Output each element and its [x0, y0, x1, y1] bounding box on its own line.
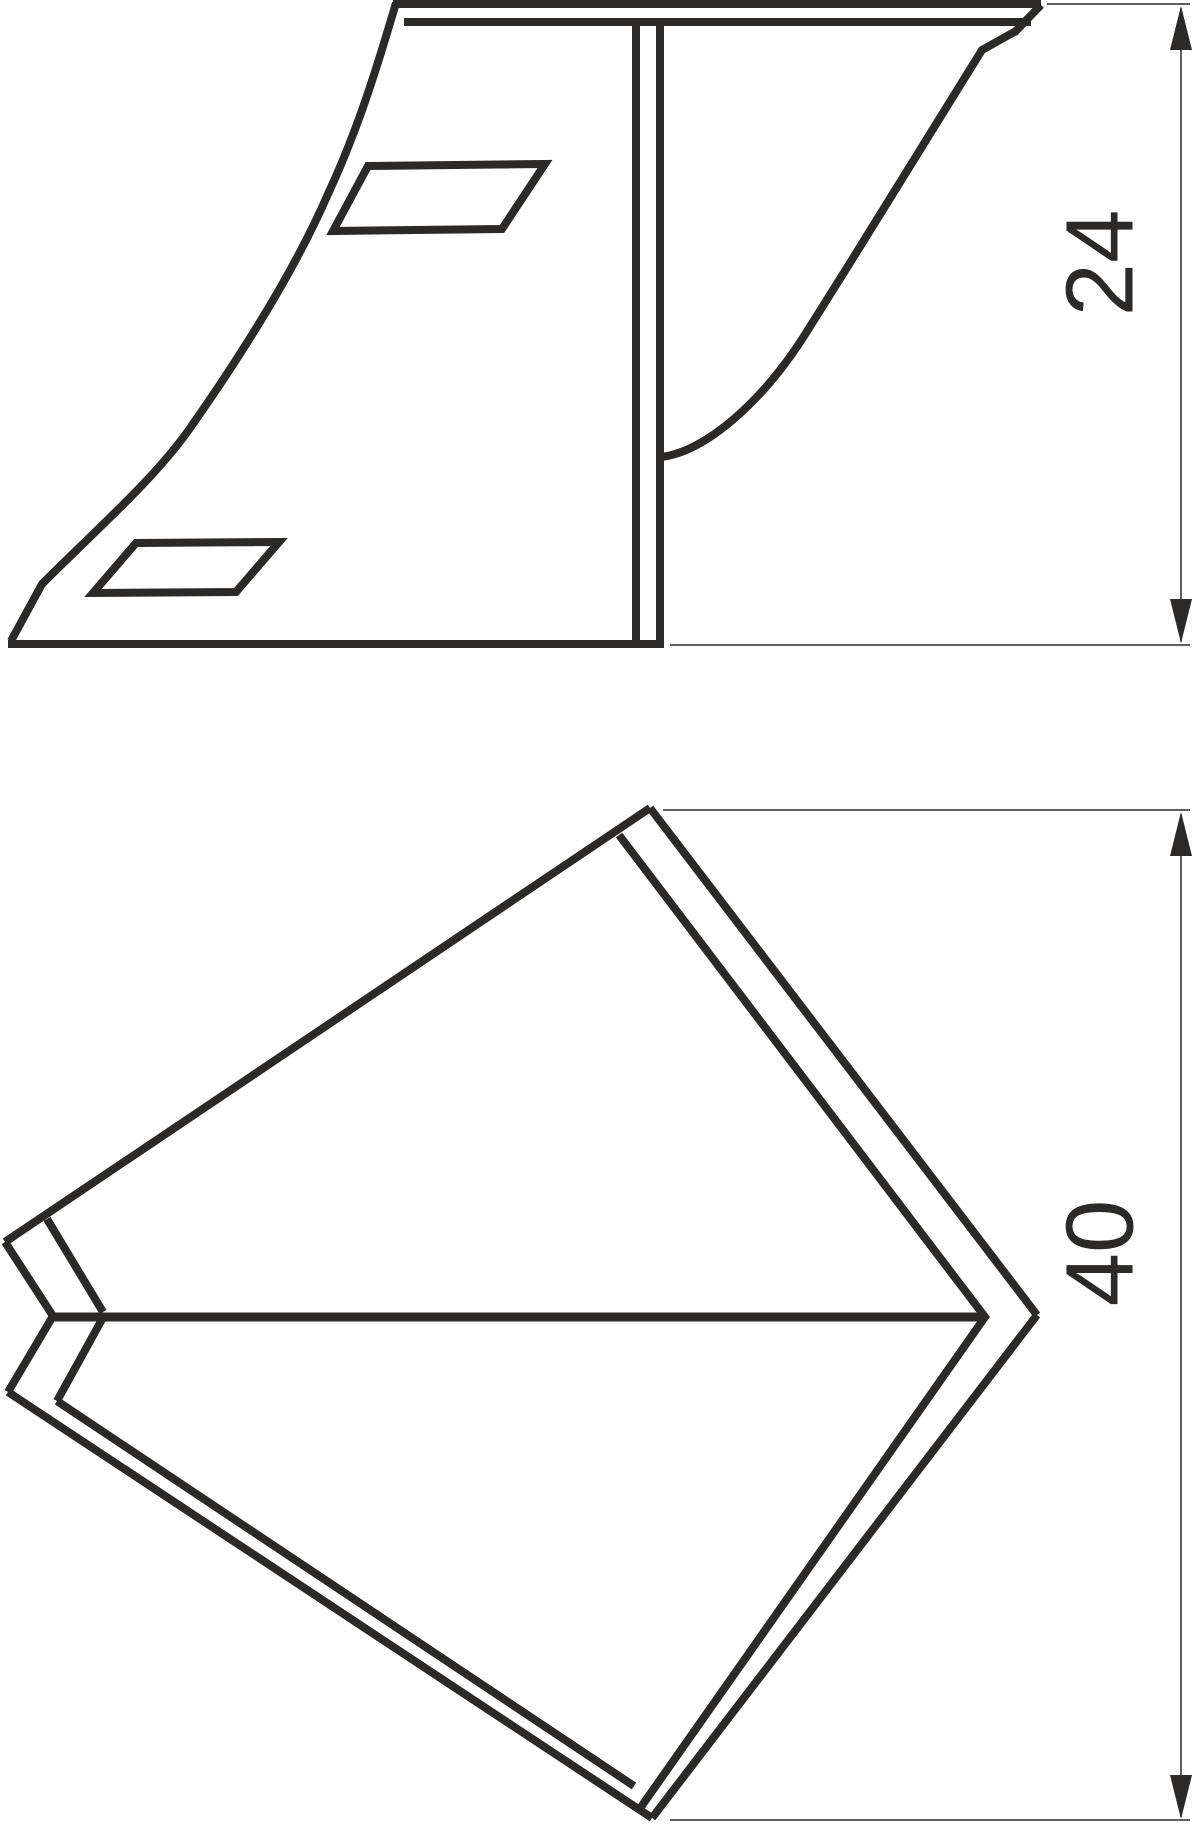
- plan-view-left-tip-inner-lower: [57, 1314, 105, 1401]
- side-view-upper-slot: [333, 164, 545, 231]
- technical-drawing: 24 40: [0, 0, 1194, 1828]
- plan-view-lower-left-inner-band: [57, 1401, 634, 1786]
- plan-view-lower-left-edge: [8, 1392, 652, 1818]
- side-view-rear-curve: [661, 31, 1016, 457]
- plan-view-lower-right-edge: [652, 1315, 1037, 1818]
- dimension-label-24: 24: [1047, 210, 1154, 317]
- plan-view-left-tip-upper-cut: [5, 1242, 53, 1316]
- side-view-lower-slot: [93, 542, 279, 593]
- dimension-label-40: 40: [1047, 1200, 1154, 1307]
- arrowhead-down-icon: [1170, 1775, 1192, 1819]
- plan-view: [5, 808, 1037, 1818]
- plan-view-upper-left-edge: [5, 808, 650, 1242]
- plan-view-left-tip-inner-upper: [47, 1219, 103, 1312]
- arrowhead-up-icon: [1170, 812, 1192, 856]
- plan-view-upper-right-edge: [650, 808, 1037, 1315]
- arrowhead-down-icon: [1170, 599, 1192, 643]
- drawing-svg: 24 40: [0, 0, 1194, 1828]
- plan-view-left-tip-lower-cut: [8, 1316, 53, 1392]
- dimension-annotations: 24 40: [663, 4, 1192, 1820]
- side-view: [8, 3, 1041, 644]
- arrowhead-up-icon: [1170, 6, 1192, 50]
